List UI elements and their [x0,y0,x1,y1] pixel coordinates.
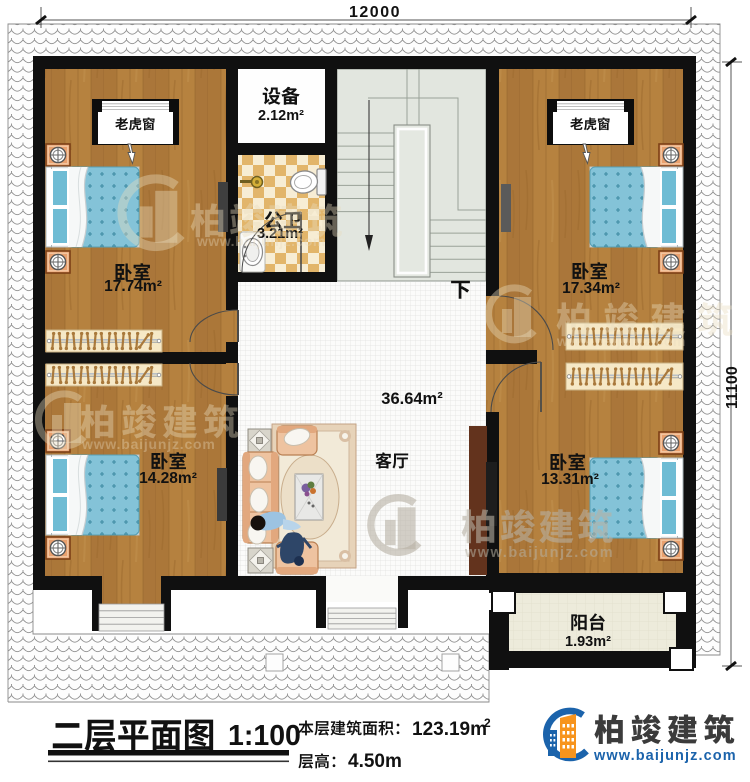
svg-text:4.50m: 4.50m [348,751,402,772]
svg-text:14.28m²: 14.28m² [139,470,197,487]
svg-text:www.baijunjz.com: www.baijunjz.com [81,436,216,452]
svg-text:www.baijunjz.com: www.baijunjz.com [556,333,686,349]
svg-text:www.baijunjz.com: www.baijunjz.com [464,545,614,561]
svg-text:17.34m²: 17.34m² [562,280,620,297]
svg-text:www.baijunjz.com: www.baijunjz.com [196,233,326,249]
svg-text:123.19m: 123.19m [412,719,487,740]
svg-text:1:100: 1:100 [228,720,301,752]
svg-text:www.baijunjz.com: www.baijunjz.com [593,748,737,764]
svg-text:1.93m²: 1.93m² [565,634,611,650]
svg-text:12000: 12000 [349,4,401,21]
svg-text:13.31m²: 13.31m² [541,471,599,488]
svg-text:11100: 11100 [724,366,741,409]
svg-text:2: 2 [484,716,491,730]
svg-text:2.12m²: 2.12m² [258,108,304,124]
svg-text:17.74m²: 17.74m² [104,278,162,295]
svg-text:36.64m²: 36.64m² [381,390,443,408]
